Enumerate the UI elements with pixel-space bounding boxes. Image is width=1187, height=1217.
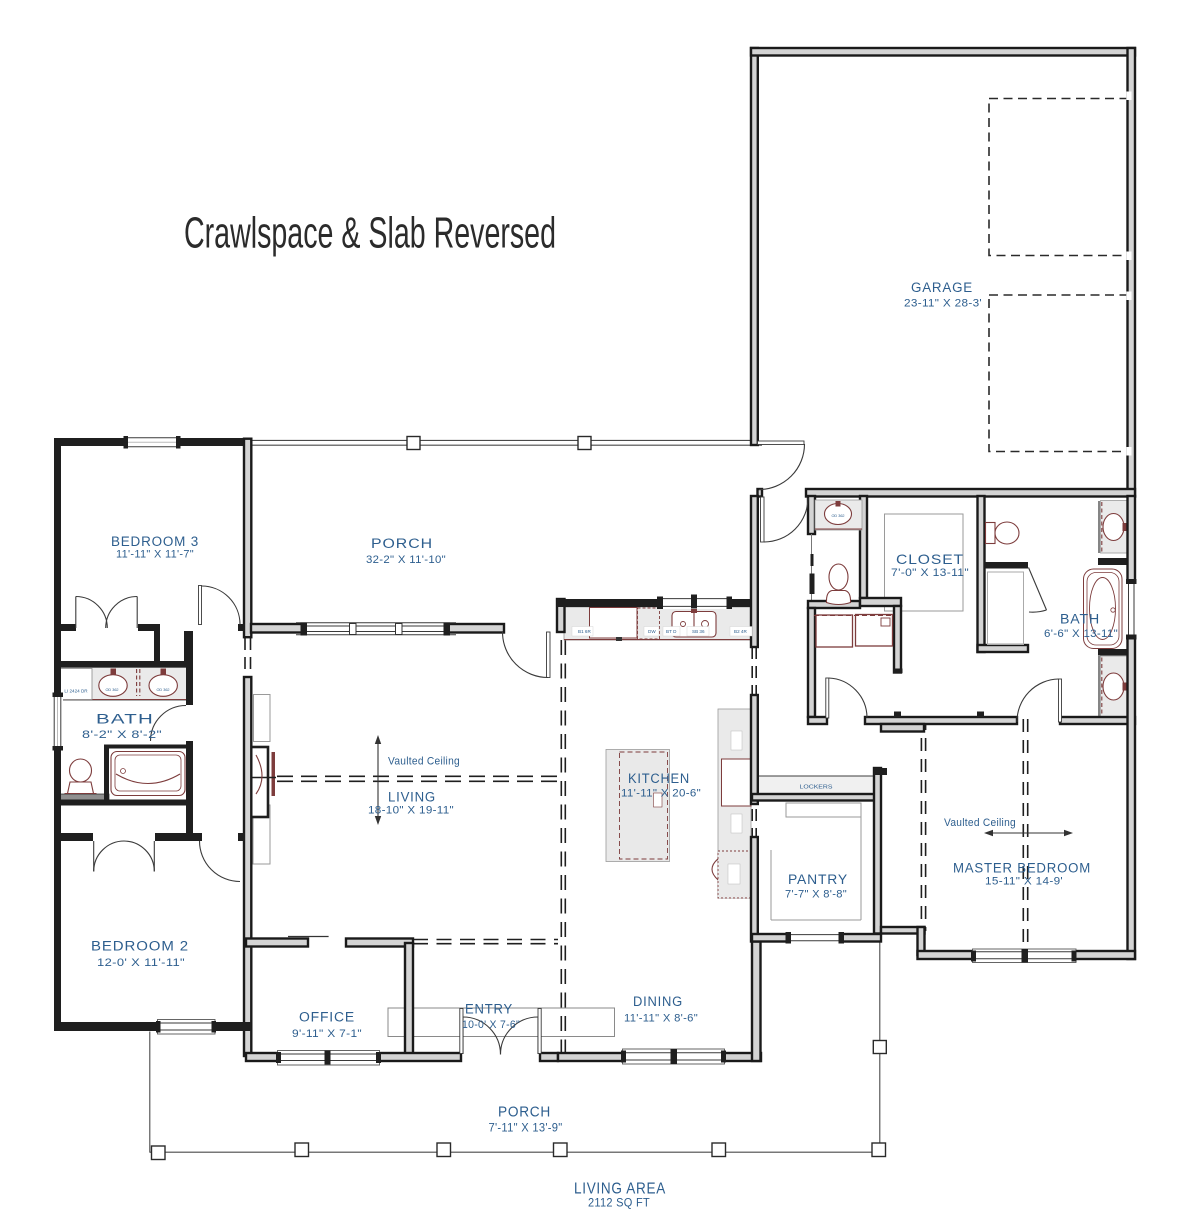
svg-text:PORCH: PORCH bbox=[371, 536, 433, 551]
svg-text:ENTRY: ENTRY bbox=[465, 1002, 513, 1017]
svg-text:OFFICE: OFFICE bbox=[299, 1010, 355, 1025]
svg-text:BEDROOM 3: BEDROOM 3 bbox=[111, 534, 199, 549]
svg-text:23-11" X 28-3': 23-11" X 28-3' bbox=[904, 298, 982, 310]
svg-text:11'-11" X 8'-6": 11'-11" X 8'-6" bbox=[624, 1013, 698, 1025]
svg-text:32-2" X 11'-10": 32-2" X 11'-10" bbox=[366, 554, 446, 566]
svg-text:BATH: BATH bbox=[1060, 612, 1100, 627]
svg-text:Vaulted Ceiling: Vaulted Ceiling bbox=[944, 817, 1016, 829]
svg-text:B2 4R: B2 4R bbox=[734, 629, 747, 634]
svg-text:8'-2" X 8'-2": 8'-2" X 8'-2" bbox=[82, 729, 162, 741]
svg-text:11'-11" X 11'-7": 11'-11" X 11'-7" bbox=[116, 549, 194, 561]
svg-text:OD 362: OD 362 bbox=[105, 688, 118, 692]
svg-text:Vaulted Ceiling: Vaulted Ceiling bbox=[388, 756, 460, 768]
svg-text:10-0' X 7-6": 10-0' X 7-6" bbox=[462, 1019, 520, 1031]
svg-text:BEDROOM 2: BEDROOM 2 bbox=[91, 939, 189, 954]
svg-text:OD 362: OD 362 bbox=[831, 514, 844, 518]
svg-text:CLOSET: CLOSET bbox=[896, 551, 964, 567]
svg-text:MASTER BEDROOM: MASTER BEDROOM bbox=[953, 861, 1091, 876]
svg-text:9'-11" X 7-1": 9'-11" X 7-1" bbox=[292, 1028, 362, 1040]
svg-text:Crawlspace & Slab Reversed: Crawlspace & Slab Reversed bbox=[184, 209, 556, 258]
svg-text:7'-7" X 8'-8": 7'-7" X 8'-8" bbox=[785, 889, 847, 901]
svg-text:18-10" X 19-11": 18-10" X 19-11" bbox=[368, 805, 454, 817]
svg-text:LI 2424 DR: LI 2424 DR bbox=[64, 689, 88, 694]
svg-text:LIVING: LIVING bbox=[388, 790, 436, 805]
svg-text:GARAGE: GARAGE bbox=[911, 280, 973, 295]
svg-text:6'-6" X 13-11": 6'-6" X 13-11" bbox=[1044, 628, 1118, 640]
svg-text:PORCH: PORCH bbox=[498, 1104, 551, 1121]
svg-text:7'-0" X 13-11": 7'-0" X 13-11" bbox=[891, 567, 969, 579]
svg-text:7'-11" X 13'-9": 7'-11" X 13'-9" bbox=[489, 1121, 563, 1135]
svg-text:12-0' X 11'-11": 12-0' X 11'-11" bbox=[97, 957, 185, 969]
svg-text:BT D: BT D bbox=[666, 629, 677, 634]
svg-text:15-11" X 14-9': 15-11" X 14-9' bbox=[985, 876, 1063, 888]
svg-text:B1 6R: B1 6R bbox=[578, 629, 591, 634]
svg-text:BATH: BATH bbox=[96, 712, 154, 727]
svg-text:DW: DW bbox=[648, 629, 656, 634]
svg-text:11'-11" X 20-6": 11'-11" X 20-6" bbox=[621, 788, 701, 800]
svg-text:PANTRY: PANTRY bbox=[788, 872, 848, 887]
svg-text:LOCKERS: LOCKERS bbox=[800, 785, 834, 791]
svg-text:DINING: DINING bbox=[633, 994, 683, 1009]
svg-text:KITCHEN: KITCHEN bbox=[628, 771, 690, 786]
svg-text:SB 36: SB 36 bbox=[692, 629, 705, 634]
svg-text:2112 SQ FT: 2112 SQ FT bbox=[588, 1196, 650, 1210]
svg-text:OD 362: OD 362 bbox=[156, 688, 169, 692]
